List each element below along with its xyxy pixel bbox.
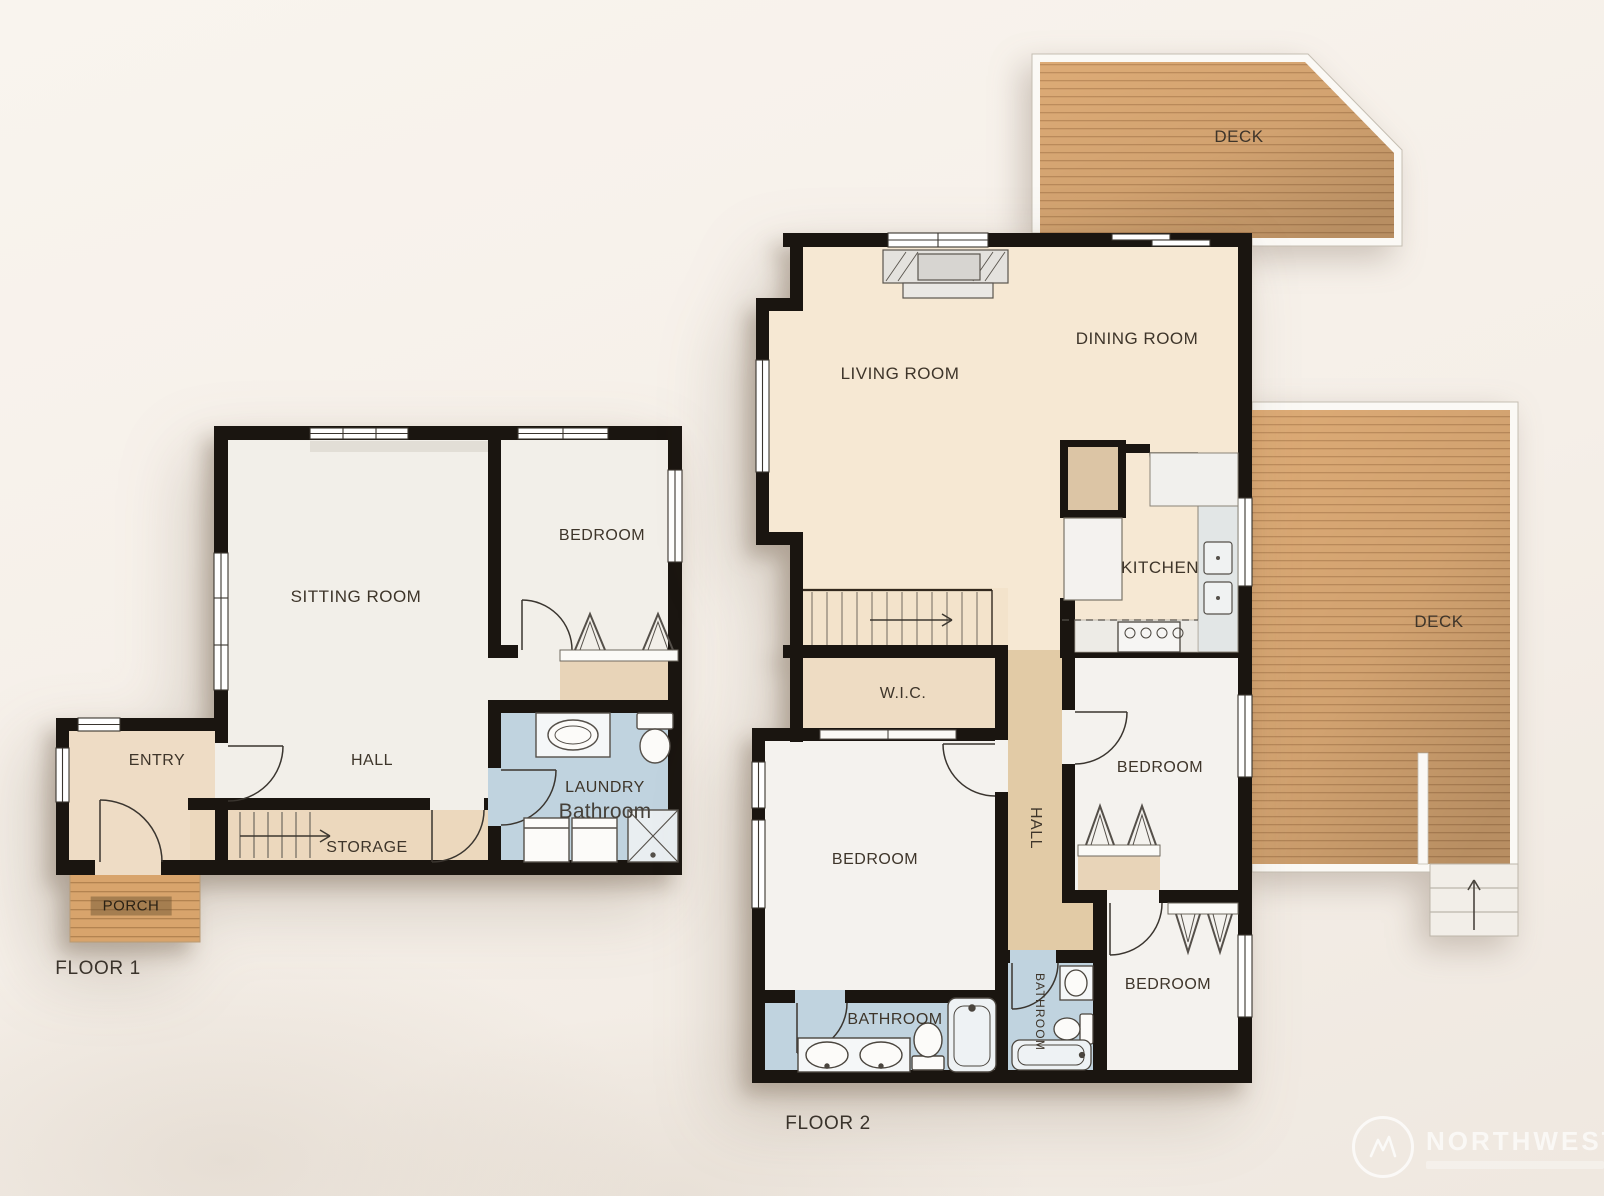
watermark-brand: NORTHWEST (1426, 1126, 1604, 1157)
room-label-bedroom-lower: BEDROOM (1125, 976, 1211, 994)
floorplan-image: SITTING ROOM BEDROOM HALL STORAGE ENTRY … (0, 0, 1604, 1196)
sliding-door (1112, 234, 1170, 240)
watermark-tagline (1426, 1161, 1604, 1169)
pantry-cabinet (1064, 518, 1122, 600)
washer (524, 818, 569, 862)
floorplan-drawing (0, 0, 1604, 1196)
stove (1118, 622, 1183, 652)
sink (1065, 970, 1087, 996)
watermark-text-block: NORTHWEST (1426, 1126, 1604, 1169)
room-label-porch: PORCH (91, 897, 172, 916)
floor1-plan (56, 426, 682, 942)
room-label-living-room: LIVING ROOM (841, 364, 960, 384)
deck-wing-wall (1418, 753, 1428, 864)
deck-right (1252, 402, 1518, 936)
room-label-deck-top: DECK (1214, 127, 1263, 147)
room-label-hall-f1: HALL (351, 752, 393, 770)
fridge (1068, 447, 1118, 510)
deck-top (1032, 54, 1402, 246)
dryer (572, 818, 617, 862)
room-label-bedroom-master: BEDROOM (832, 851, 918, 869)
room-label-bathroom-master: BATHROOM (847, 1011, 942, 1029)
floor2-plan (752, 233, 1252, 1083)
room-label-storage: STORAGE (326, 839, 407, 857)
toilet-tank (912, 1056, 944, 1070)
room-label-bathroom-small: BATHROOM (1033, 973, 1047, 1051)
room-label-hall-f2: HALL (1026, 807, 1044, 849)
northwest-logo-icon (1352, 1116, 1414, 1178)
room-label-entry: ENTRY (129, 752, 185, 770)
room-label-bedroom-f1: BEDROOM (559, 527, 645, 545)
room-label-deck-right: DECK (1414, 612, 1463, 632)
room-label-kitchen: KITCHEN (1121, 558, 1199, 578)
room-label-laundry: LAUNDRY (565, 779, 645, 797)
room-label-bedroom-mid: BEDROOM (1117, 759, 1203, 777)
floor1-label: FLOOR 1 (55, 958, 141, 980)
deck-stairs (1430, 864, 1518, 936)
floor2-label: FLOOR 2 (785, 1113, 871, 1135)
room-label-dining-room: DINING ROOM (1076, 329, 1199, 349)
toilet-bowl (640, 729, 670, 763)
room-label-wic: W.I.C. (880, 685, 927, 703)
watermark: NORTHWEST (1352, 1116, 1604, 1178)
room-label-bathroom-f1: Bathroom (559, 800, 652, 824)
toilet-bowl (1054, 1018, 1080, 1040)
room-label-sitting-room: SITTING ROOM (291, 587, 422, 607)
toilet-tank (637, 713, 673, 729)
